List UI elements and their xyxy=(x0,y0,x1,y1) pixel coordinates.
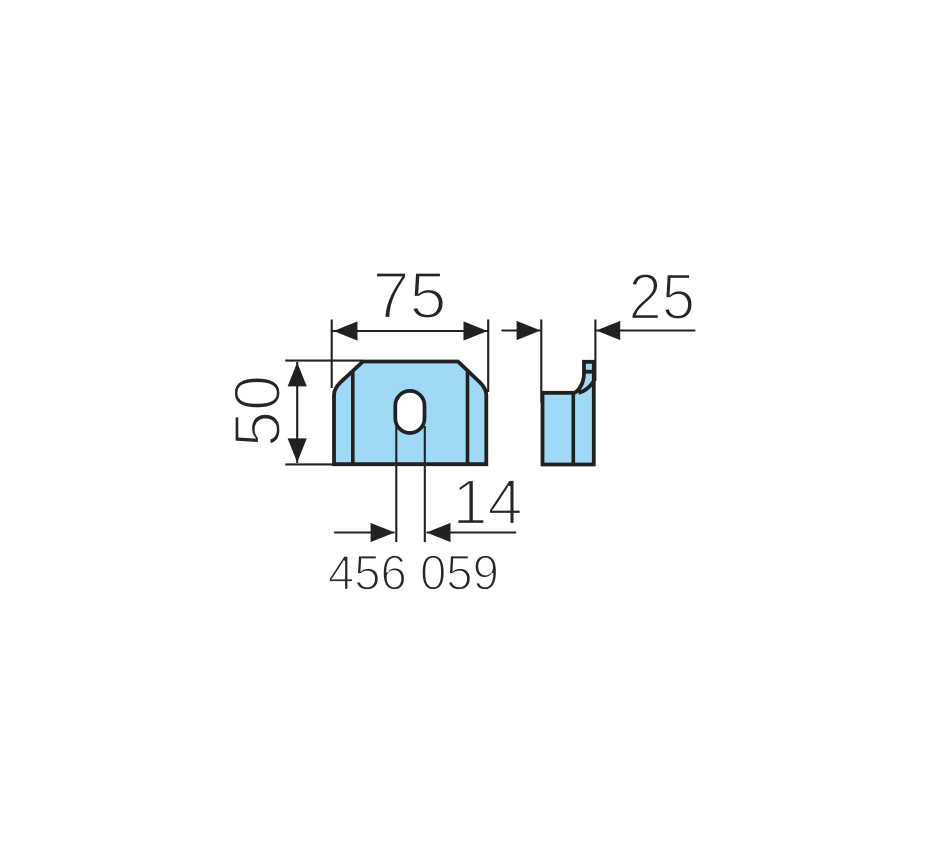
svg-text:14: 14 xyxy=(452,466,522,538)
svg-text:25: 25 xyxy=(629,260,696,333)
svg-text:50: 50 xyxy=(220,375,294,447)
svg-text:456 059: 456 059 xyxy=(328,547,499,601)
svg-text:75: 75 xyxy=(373,258,447,332)
